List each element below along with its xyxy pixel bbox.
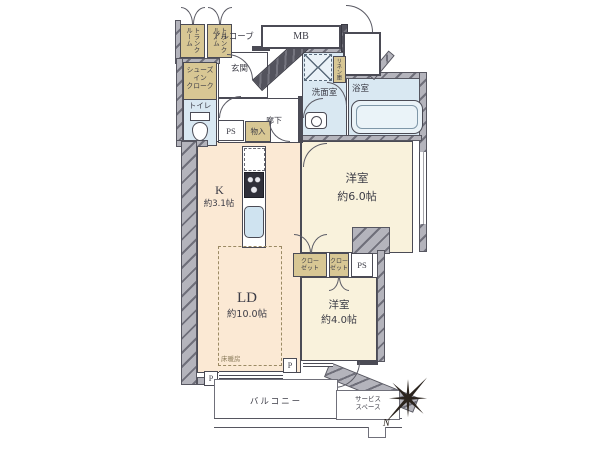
closet-1: クロー ゼット [293, 253, 327, 277]
pipe-space-label: PS [226, 126, 235, 136]
door-arc [208, 7, 220, 24]
closet-line1: クロー [301, 258, 319, 265]
shoes-in-cloak-line2: イン [193, 74, 207, 82]
alcove-label: アルコーブ [212, 32, 254, 42]
bathroom-label: 浴室 [352, 84, 369, 94]
stove-icon [244, 172, 264, 198]
north-label: N [382, 418, 391, 428]
door-arc [181, 7, 193, 24]
door-arc [346, 5, 373, 32]
shoes-in-cloak-label: シューズ イン クローク [184, 66, 216, 90]
pipe-space-2: PS [351, 253, 373, 277]
pillar-label: P [209, 374, 213, 383]
wall [377, 250, 385, 362]
window [419, 152, 427, 224]
storage-label: 物入 [251, 126, 266, 137]
wall [176, 58, 183, 146]
kitchen-size: 約3.1帖 [194, 199, 244, 209]
meter-box-label: MB [263, 31, 339, 43]
pipe-space-1: PS [218, 120, 244, 141]
shoes-in-cloak-line3: クローク [186, 82, 213, 90]
wall [298, 96, 303, 143]
pipe-space-label: PS [357, 260, 366, 270]
service-line2: スペース [355, 403, 380, 411]
open-court-box [343, 32, 381, 76]
closet-2-label: クロー ゼット [330, 258, 348, 272]
wall [300, 135, 422, 141]
window [303, 360, 333, 367]
shoes-in-cloak: シューズ イン クローク [183, 62, 217, 100]
west-room6-label: 洋室 [301, 172, 413, 186]
bathtub-icon [356, 105, 418, 129]
closet-1-label: クロー ゼット [294, 258, 326, 272]
refrigerator-space [244, 148, 265, 171]
wall [357, 360, 378, 365]
trunk-room-1: トランクルーム [180, 24, 205, 58]
floorplan-canvas: トランクルーム トランクルーム MB アルコーブ シューズ イン クローク 玄関… [0, 0, 600, 450]
sink-icon [244, 206, 264, 238]
west-room4-size: 約4.0帖 [301, 315, 377, 327]
pillar-1: P [283, 358, 297, 373]
shoes-in-cloak-line1: シューズ [187, 66, 214, 74]
door-arc [193, 7, 205, 24]
linen-label: リネン庫 [335, 58, 341, 83]
wall-left-exterior [181, 141, 197, 385]
meter-box: MB [261, 25, 341, 49]
trunk-room-label: トランクルーム [184, 27, 199, 57]
closet-line2: ゼット [301, 265, 319, 272]
living-size: 約10.0帖 [208, 309, 286, 320]
west-room6-size: 約6.0帖 [301, 190, 413, 203]
linen-storage: リネン庫 [333, 56, 346, 83]
balcony-label: バルコニー [214, 397, 338, 407]
washing-machine-icon [304, 54, 332, 81]
pillar-label: P [288, 361, 292, 370]
storage-monoire: 物入 [245, 121, 271, 142]
toilet-label: トイレ [183, 101, 217, 110]
bathtub-icon [351, 100, 423, 134]
closet-2: クロー ゼット [329, 253, 349, 277]
window [219, 371, 283, 379]
floor-heating-label: 床暖房 [221, 356, 241, 364]
compass-rose: N [382, 372, 434, 428]
closet-line1: クロー [330, 258, 348, 265]
door-arc [220, 7, 232, 24]
closet-line2: ゼット [330, 265, 348, 272]
kitchen-label: K [197, 183, 242, 197]
toilet-icon [190, 112, 210, 121]
service-line1: サービス [355, 395, 381, 403]
service-space-stub [368, 427, 386, 438]
living-label: LD [208, 289, 286, 307]
west-room4-label: 洋室 [301, 299, 377, 312]
